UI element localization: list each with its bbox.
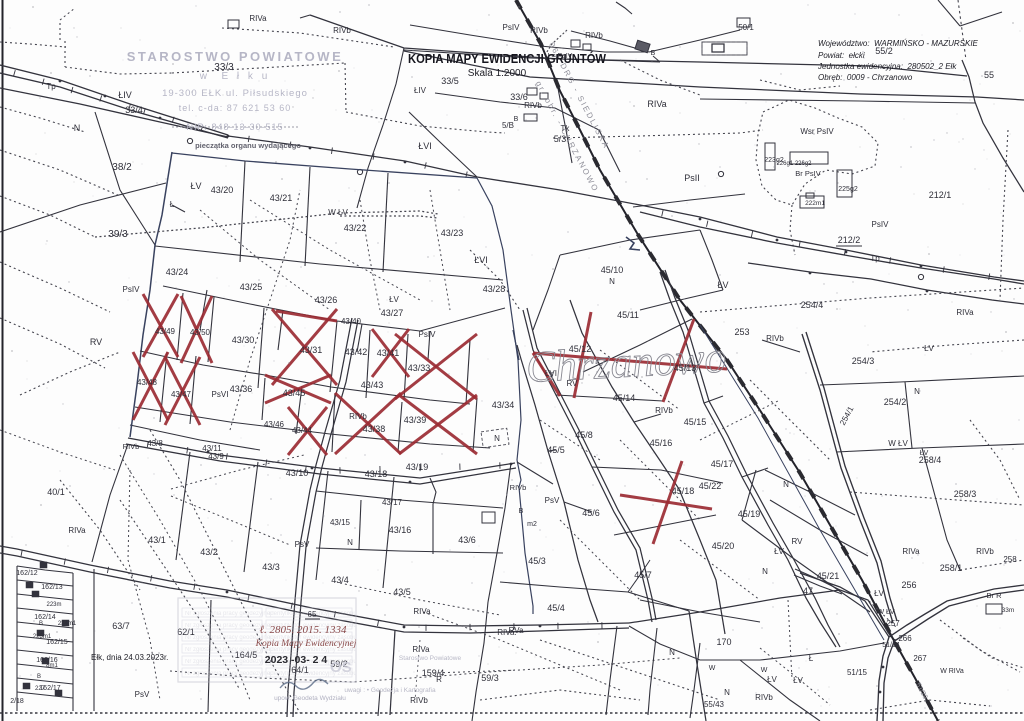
svg-text:162/15: 162/15 <box>46 639 68 646</box>
svg-text:W ŁV: W ŁV <box>328 208 348 217</box>
svg-text:Ł: Ł <box>170 200 175 209</box>
svg-text:254/3: 254/3 <box>852 356 875 366</box>
svg-text:m2: m2 <box>527 521 537 528</box>
svg-text:RIVa: RIVa <box>956 308 974 317</box>
svg-text:45/7: 45/7 <box>634 570 652 580</box>
svg-text:45/11: 45/11 <box>617 310 639 320</box>
svg-text:43/19: 43/19 <box>406 462 429 472</box>
svg-text:PsIV: PsIV <box>872 220 890 229</box>
svg-text:ŁV: ŁV <box>924 344 934 353</box>
svg-text:B: B <box>514 116 519 123</box>
svg-text:PsII: PsII <box>684 173 700 183</box>
svg-text:33/4: 33/4 <box>125 105 143 115</box>
svg-text:55/2: 55/2 <box>875 46 893 56</box>
svg-text:Tp: Tp <box>870 254 880 263</box>
svg-text:45/17: 45/17 <box>711 459 734 469</box>
svg-text:257: 257 <box>886 619 900 628</box>
svg-text:ŁVI: ŁVI <box>474 255 488 265</box>
svg-text:Chrzanowo: Chrzanowo <box>525 333 727 392</box>
svg-text:RIVb: RIVb <box>349 412 367 421</box>
svg-text:45/20: 45/20 <box>712 541 735 551</box>
svg-text:43/6: 43/6 <box>458 535 476 545</box>
svg-text:Ł: Ł <box>809 654 814 663</box>
svg-text:33m: 33m <box>1002 607 1015 614</box>
svg-text:ŁV: ŁV <box>717 280 728 290</box>
svg-text:RIVb: RIVb <box>123 442 140 451</box>
svg-text:254/2: 254/2 <box>884 397 907 407</box>
svg-text:258/3: 258/3 <box>954 489 977 499</box>
svg-text:ŁVI: ŁVI <box>418 141 432 151</box>
svg-text:Nr zgłoszenia pracy geodezyjne: Nr zgłoszenia pracy geodezyjnej <box>185 671 271 677</box>
svg-text:256: 256 <box>901 580 916 590</box>
svg-text:212/1: 212/1 <box>929 190 952 200</box>
svg-text:43/21: 43/21 <box>270 193 293 203</box>
svg-text:Br R: Br R <box>987 591 1003 600</box>
svg-text:Nr zgłoszenia pracy geodezyjne: Nr zgłoszenia pracy geodezyjnej <box>185 623 271 629</box>
svg-text:W RIVa: W RIVa <box>940 668 964 675</box>
svg-text:PsVI: PsVI <box>212 390 229 399</box>
svg-text:162/17: 162/17 <box>39 685 61 692</box>
svg-text:RV: RV <box>792 537 804 546</box>
svg-text:43/43: 43/43 <box>361 380 384 390</box>
svg-text:B: B <box>37 674 41 680</box>
svg-text:PsV: PsV <box>545 496 560 505</box>
svg-text:43/20: 43/20 <box>211 185 234 195</box>
svg-text:43/16: 43/16 <box>389 525 412 535</box>
svg-text:55: 55 <box>984 70 994 80</box>
svg-text:253: 253 <box>734 327 749 337</box>
svg-text:Jednostka ewidencyjna: 280502: Jednostka ewidencyjna: 280502_2 Ełk <box>817 62 957 71</box>
svg-text:N: N <box>609 277 615 286</box>
svg-text:RIVa: RIVa <box>68 526 86 535</box>
svg-text:45/3: 45/3 <box>528 556 546 566</box>
svg-text:162/14: 162/14 <box>34 614 56 621</box>
svg-text:43/4: 43/4 <box>331 575 349 585</box>
svg-text:N: N <box>494 434 500 443</box>
svg-text:43/18: 43/18 <box>365 469 388 479</box>
svg-text:2/18: 2/18 <box>10 698 24 705</box>
svg-text:43/48: 43/48 <box>137 378 158 387</box>
svg-text:Obręb: 0009 - Chrzanowo: Obręb: 0009 - Chrzanowo <box>818 73 913 82</box>
svg-text:45/22: 45/22 <box>699 481 722 491</box>
svg-text:170: 170 <box>716 637 731 647</box>
svg-text:upow. Geodeta Wydziału: upow. Geodeta Wydziału <box>274 695 346 702</box>
svg-text:RIVb: RIVb <box>530 26 548 35</box>
svg-text:W ŁV: W ŁV <box>877 609 894 616</box>
svg-text:Ełk, dnia 24.03.2023r.: Ełk, dnia 24.03.2023r. <box>91 653 168 662</box>
svg-text:43/9: 43/9 <box>208 452 224 461</box>
svg-text:43/44: 43/44 <box>292 426 313 435</box>
svg-text:RIVb: RIVb <box>510 483 527 492</box>
svg-text:19-300 EŁK ul. Piłsudskiego: 19-300 EŁK ul. Piłsudskiego <box>162 88 308 99</box>
svg-text:Tp: Tp <box>46 82 56 91</box>
svg-text:ŁIV: ŁIV <box>118 90 132 100</box>
svg-text:RIVb: RIVb <box>976 547 994 556</box>
svg-text:266: 266 <box>898 634 912 643</box>
svg-text:Województwo: WARMIŃSKO - MAZU: Województwo: WARMIŃSKO - MAZURSKIE <box>818 39 979 48</box>
svg-text:ŁIV: ŁIV <box>414 86 427 95</box>
svg-text:212/2: 212/2 <box>838 235 861 245</box>
svg-text:43/2: 43/2 <box>200 547 218 557</box>
svg-text:43/46: 43/46 <box>264 420 285 429</box>
svg-text:PsV: PsV <box>135 690 150 699</box>
svg-text:RIVb: RIVb <box>410 696 428 705</box>
svg-text:226g1 226g2: 226g1 226g2 <box>776 161 812 167</box>
svg-text:51/14: 51/14 <box>882 642 900 649</box>
svg-text:RIVb: RIVb <box>333 26 351 35</box>
svg-text:uwagi : • Geodezja i Kartograf: uwagi : • Geodezja i Kartografia <box>344 687 436 694</box>
svg-text:ℓ. 2805. 2015. 1334: ℓ. 2805. 2015. 1334 <box>259 624 347 636</box>
svg-text:Powiat: ełcki: Powiat: ełcki <box>818 51 865 60</box>
svg-text:43/30: 43/30 <box>232 335 255 345</box>
svg-text:I = PsIV: I = PsIV <box>548 53 573 60</box>
svg-text:N: N <box>347 538 353 547</box>
svg-text:63/7: 63/7 <box>112 621 130 631</box>
svg-text:tel. c-da: 87 621 53 60: tel. c-da: 87 621 53 60 <box>179 103 292 113</box>
svg-text:RIVa.: RIVa. <box>497 628 516 637</box>
svg-text:ŁV: ŁV <box>389 295 399 304</box>
svg-text:RIVb: RIVb <box>655 406 673 415</box>
svg-text:43/33: 43/33 <box>408 363 431 373</box>
svg-text:43/49: 43/49 <box>155 327 176 336</box>
svg-text:45/19: 45/19 <box>738 509 761 519</box>
svg-text:ŁV: ŁV <box>793 676 803 685</box>
svg-text:W: W <box>709 665 716 672</box>
svg-text:RIVa: RIVa <box>249 14 267 23</box>
svg-text:Starostwo Powiatowe: Starostwo Powiatowe <box>399 655 462 662</box>
svg-text:43/47: 43/47 <box>171 390 192 399</box>
svg-text:43/22: 43/22 <box>344 223 367 233</box>
svg-text:45/4: 45/4 <box>547 603 565 613</box>
svg-text:43/39: 43/39 <box>404 415 427 425</box>
svg-text:43/15: 43/15 <box>330 518 351 527</box>
svg-text:ŁV: ŁV <box>767 675 777 684</box>
svg-text:RIVa: RIVa <box>412 645 430 654</box>
svg-text:43/23: 43/23 <box>441 228 464 238</box>
svg-text:43/45: 43/45 <box>283 388 306 398</box>
svg-text:43/38: 43/38 <box>363 424 386 434</box>
svg-text:43/1: 43/1 <box>148 535 166 545</box>
svg-text:258: 258 <box>1003 555 1017 564</box>
svg-text:43/28: 43/28 <box>483 284 506 294</box>
svg-text:PsIV: PsIV <box>419 330 437 339</box>
svg-text:43/27: 43/27 <box>381 308 404 318</box>
svg-text:38/2: 38/2 <box>112 162 132 173</box>
svg-text:43/3: 43/3 <box>262 562 280 572</box>
svg-text:43/17: 43/17 <box>382 498 403 507</box>
svg-text:45/6: 45/6 <box>582 508 600 518</box>
svg-text:39/3: 39/3 <box>108 229 128 240</box>
svg-text:47: 47 <box>803 586 813 596</box>
svg-text:5/3: 5/3 <box>554 134 567 144</box>
svg-text:RV: RV <box>567 379 579 388</box>
svg-text:RIVa: RIVa <box>413 607 431 616</box>
svg-text:43/8: 43/8 <box>147 439 163 448</box>
svg-text:43/40: 43/40 <box>341 317 362 326</box>
svg-text:43/36: 43/36 <box>230 384 253 394</box>
svg-text:2023 -03- 2 4: 2023 -03- 2 4 <box>265 654 328 666</box>
svg-text:162/12: 162/12 <box>16 570 38 577</box>
svg-text:N: N <box>783 480 789 489</box>
svg-text:43/50: 43/50 <box>190 328 211 337</box>
svg-text:R: R <box>436 675 442 684</box>
svg-text:KOPIA MAPY EWIDENCJI GRUNTÓW: KOPIA MAPY EWIDENCJI GRUNTÓW <box>408 51 606 66</box>
svg-text:43/10: 43/10 <box>286 468 309 478</box>
svg-text:STAROSTWO POWIATOWE: STAROSTWO POWIATOWE <box>127 49 344 64</box>
svg-text:Wsr PsIV: Wsr PsIV <box>800 127 834 136</box>
svg-text:222m1: 222m1 <box>805 200 825 207</box>
svg-text:ŁV: ŁV <box>920 450 929 457</box>
svg-text:w E ł k u: w E ł k u <box>199 71 271 82</box>
svg-text:45/8: 45/8 <box>575 430 593 440</box>
svg-text:43/34: 43/34 <box>492 400 515 410</box>
svg-text:45/12: 45/12 <box>569 344 592 354</box>
svg-text:33/3: 33/3 <box>214 62 234 73</box>
svg-text:162/13: 162/13 <box>41 584 63 591</box>
svg-text:RIVb: RIVb <box>766 334 784 343</box>
svg-text:59/3: 59/3 <box>481 673 499 683</box>
svg-text:Tk: Tk <box>561 124 571 133</box>
svg-text:B: B <box>39 621 43 627</box>
svg-text:Nr zgłoszenia pracy geodezyjne: Nr zgłoszenia pracy geodezyjnej <box>185 611 271 617</box>
svg-text:43/26: 43/26 <box>315 295 338 305</box>
svg-text:45/15: 45/15 <box>684 417 707 427</box>
svg-text:45/13: 45/13 <box>674 363 697 373</box>
svg-text:Nr zgłoszenia pracy geodezyjne: Nr zgłoszenia pracy geodezyjnej <box>185 659 271 665</box>
svg-text:RV: RV <box>90 337 102 347</box>
svg-text:identyfikator ewidencyjny zaso: identyfikator ewidencyjny zasobu <box>269 611 357 617</box>
svg-text:B: B <box>519 508 524 515</box>
svg-text:254/4: 254/4 <box>801 300 824 310</box>
svg-text:45/21: 45/21 <box>817 571 840 581</box>
svg-text:pieczątka organu wydającego: pieczątka organu wydającego <box>195 141 301 150</box>
svg-text:N: N <box>669 648 675 657</box>
svg-text:223m: 223m <box>46 602 61 608</box>
svg-text:45/16: 45/16 <box>650 438 673 448</box>
svg-text:Br PsIV: Br PsIV <box>795 169 820 178</box>
svg-text:43/5: 43/5 <box>393 587 411 597</box>
svg-text:W: W <box>761 667 768 674</box>
svg-text:N: N <box>74 123 81 133</box>
svg-text:258/1: 258/1 <box>940 563 963 573</box>
svg-text:45/10: 45/10 <box>601 265 624 275</box>
svg-text:55/43: 55/43 <box>704 700 725 709</box>
svg-text:224m1: 224m1 <box>58 621 77 627</box>
svg-text:45/14: 45/14 <box>613 393 636 403</box>
svg-text:B: B <box>651 50 656 57</box>
svg-text:N: N <box>762 567 768 576</box>
svg-text:RIVa: RIVa <box>647 99 666 109</box>
svg-text:N: N <box>724 688 730 697</box>
svg-text:225g2: 225g2 <box>838 186 858 193</box>
svg-text:RIVb: RIVb <box>524 101 542 110</box>
svg-text:45/18: 45/18 <box>672 486 695 496</box>
svg-text:PsV: PsV <box>295 540 310 549</box>
svg-text:8m1: 8m1 <box>46 663 58 669</box>
svg-text:5/B: 5/B <box>502 121 514 130</box>
svg-text:51/15: 51/15 <box>847 668 868 677</box>
svg-text:43/25: 43/25 <box>240 282 263 292</box>
svg-text:PsIV: PsIV <box>123 285 141 294</box>
svg-text:43/42: 43/42 <box>345 347 368 357</box>
svg-text:PsIV: PsIV <box>503 23 521 32</box>
svg-text:Kopia Mapy Ewidencyjnej: Kopia Mapy Ewidencyjnej <box>255 639 357 649</box>
svg-text:43/24: 43/24 <box>166 267 189 277</box>
svg-text:40/1: 40/1 <box>47 487 65 497</box>
svg-text:ŁV: ŁV <box>874 589 884 598</box>
svg-text:ŁVI: ŁVI <box>545 369 557 378</box>
svg-text:45/5: 45/5 <box>547 445 565 455</box>
svg-text:50/1: 50/1 <box>738 23 754 32</box>
svg-text:43/41: 43/41 <box>377 348 400 358</box>
svg-text:OS: OS <box>330 659 352 676</box>
svg-text:ŁV: ŁV <box>190 181 201 191</box>
svg-text:Skala 1:2000: Skala 1:2000 <box>468 68 527 79</box>
svg-text:RIVb: RIVb <box>755 693 773 702</box>
svg-text:W ŁV: W ŁV <box>888 439 908 448</box>
svg-text:43/31: 43/31 <box>300 345 323 355</box>
svg-text:ŁV: ŁV <box>774 547 784 556</box>
svg-text:N: N <box>914 387 920 396</box>
svg-text:267: 267 <box>913 654 927 663</box>
